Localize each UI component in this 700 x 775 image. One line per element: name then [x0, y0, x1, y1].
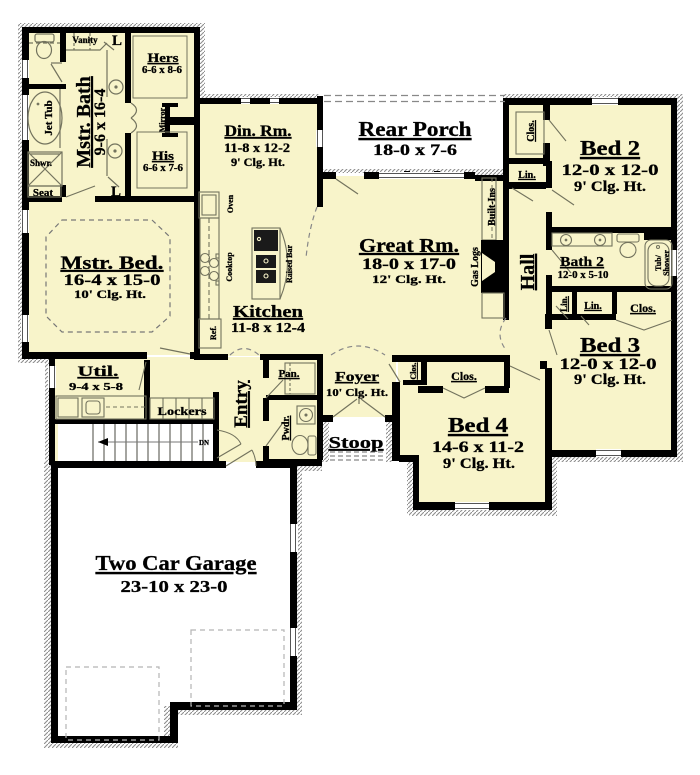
svg-text:Jet Tub: Jet Tub [43, 100, 55, 135]
svg-text:Hall: Hall [517, 253, 539, 290]
svg-text:9' Clg. Ht.: 9' Clg. Ht. [574, 372, 646, 388]
svg-text:Lin.: Lin. [559, 296, 569, 312]
svg-text:Entry: Entry [231, 380, 252, 428]
svg-text:6-6 x 8-6: 6-6 x 8-6 [142, 65, 182, 76]
svg-text:Bed 4: Bed 4 [448, 413, 509, 437]
svg-text:Raised Bar: Raised Bar [285, 245, 294, 283]
svg-text:12-0 x 12-0: 12-0 x 12-0 [560, 356, 657, 373]
svg-text:Built-Ins: Built-Ins [487, 188, 498, 226]
svg-text:Cooktop: Cooktop [225, 252, 234, 282]
svg-text:Din. Rm.: Din. Rm. [225, 123, 292, 140]
svg-text:9' Clg. Ht.: 9' Clg. Ht. [443, 456, 515, 472]
svg-text:6-6 x 7-6: 6-6 x 7-6 [143, 163, 183, 174]
svg-text:9-4 x 5-8: 9-4 x 5-8 [69, 381, 124, 393]
svg-text:DN: DN [199, 439, 209, 447]
svg-text:11-8 x 12-2: 11-8 x 12-2 [224, 140, 290, 155]
svg-text:Kitchen: Kitchen [233, 302, 304, 321]
svg-text:Great Rm.: Great Rm. [359, 235, 459, 257]
svg-text:Pan.: Pan. [278, 368, 299, 380]
svg-text:Oven: Oven [226, 194, 235, 213]
svg-text:Mstr. Bed.: Mstr. Bed. [61, 253, 164, 274]
svg-text:L: L [111, 184, 121, 200]
svg-text:Lockers: Lockers [158, 404, 207, 418]
svg-text:Rear Porch: Rear Porch [359, 117, 472, 141]
svg-text:9' Clg. Ht.: 9' Clg. Ht. [574, 179, 646, 195]
svg-text:Pwdr.: Pwdr. [281, 415, 292, 440]
svg-text:Gas Logs: Gas Logs [470, 247, 481, 287]
svg-text:Clos.: Clos. [451, 369, 477, 383]
svg-text:Clos.: Clos. [409, 362, 418, 379]
svg-text:18-0 x 7-6: 18-0 x 7-6 [373, 142, 457, 159]
svg-text:Lin.: Lin. [584, 301, 602, 312]
svg-text:Seat: Seat [33, 187, 54, 199]
svg-text:Foyer: Foyer [335, 370, 379, 385]
svg-text:Lin.: Lin. [518, 170, 536, 181]
svg-text:Vanity: Vanity [72, 35, 98, 45]
svg-text:Mirror: Mirror [158, 107, 167, 132]
svg-text:L: L [112, 33, 122, 49]
svg-text:Hers: Hers [148, 50, 179, 65]
svg-text:Ref.: Ref. [209, 326, 218, 340]
svg-text:Bath 2: Bath 2 [560, 255, 604, 270]
svg-text:14-6 x 11-2: 14-6 x 11-2 [432, 439, 524, 456]
svg-text:11-8 x 12-4: 11-8 x 12-4 [231, 321, 305, 336]
svg-text:Bed 2: Bed 2 [580, 136, 640, 160]
svg-text:Util.: Util. [78, 364, 119, 380]
svg-text:9' Clg. Ht.: 9' Clg. Ht. [231, 155, 285, 169]
svg-text:Bed 3: Bed 3 [580, 333, 640, 357]
svg-text:10' Clg. Ht.: 10' Clg. Ht. [326, 387, 388, 399]
svg-text:18-0 x 17-0: 18-0 x 17-0 [362, 256, 456, 273]
svg-text:10' Clg. Ht.: 10' Clg. Ht. [74, 287, 146, 301]
svg-text:12-0 x 12-0: 12-0 x 12-0 [562, 162, 659, 179]
svg-text:Shower: Shower [662, 250, 671, 276]
svg-text:23-10 x 23-0: 23-10 x 23-0 [121, 577, 228, 596]
svg-text:Clos.: Clos. [630, 301, 656, 315]
svg-text:Shwr.: Shwr. [30, 158, 52, 168]
svg-text:9-6 x 16-4: 9-6 x 16-4 [92, 89, 109, 156]
svg-text:12' Clg. Ht.: 12' Clg. Ht. [372, 272, 446, 286]
svg-text:His: His [152, 148, 174, 163]
svg-text:Clos.: Clos. [526, 120, 537, 142]
svg-text:Stoop: Stoop [329, 433, 384, 452]
svg-text:Two Car Garage: Two Car Garage [96, 551, 257, 575]
svg-text:12-0 x 5-10: 12-0 x 5-10 [558, 269, 609, 281]
